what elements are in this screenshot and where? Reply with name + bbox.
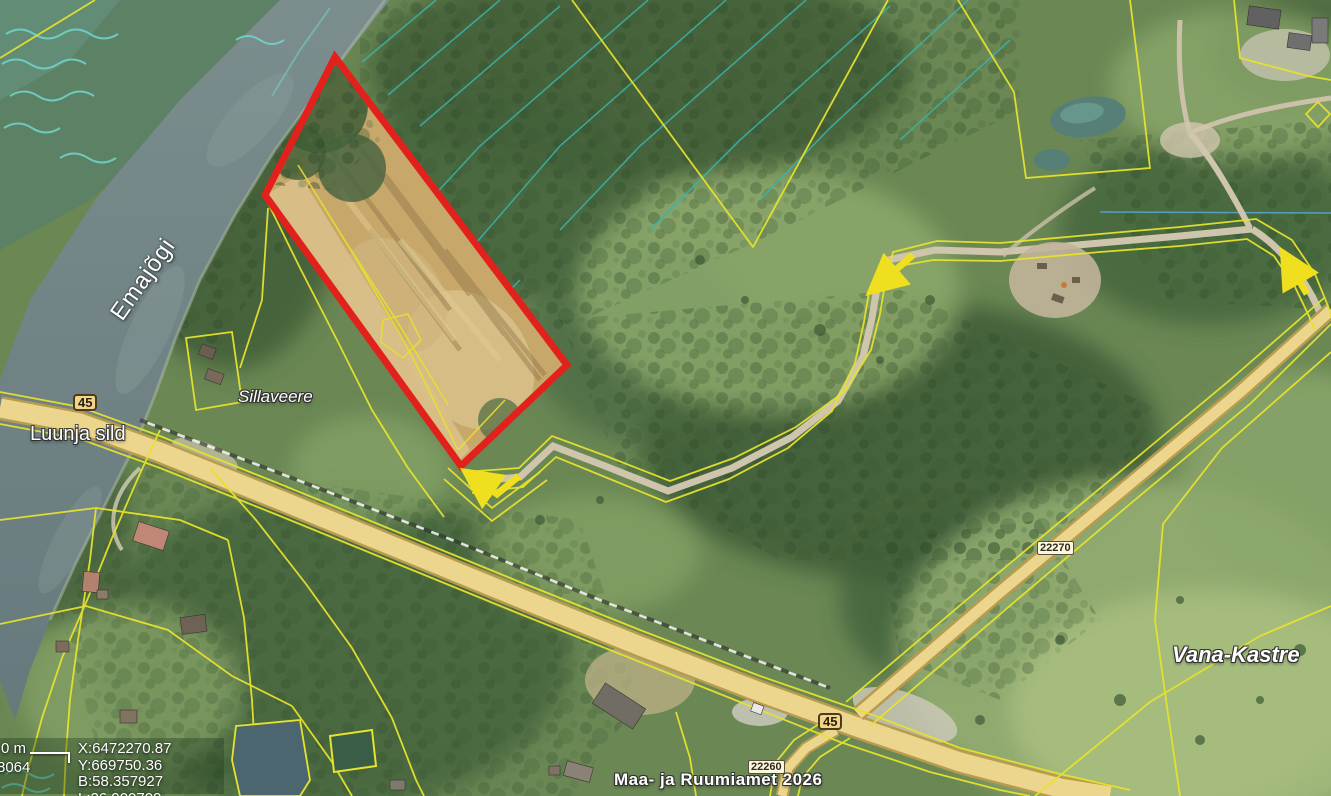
coords-bl: B:58.357927 L:26.900709 (78, 774, 224, 796)
coordinate-readout: X:6472270.87 Y:669750.36 B:58.357927 L:2… (78, 741, 224, 796)
blue-utility-line (1100, 212, 1331, 213)
info-panel: 0 m 8064 X:6472270.87 Y:669750.36 B:58.3… (0, 738, 224, 794)
scale-value: 8064 (0, 759, 30, 776)
aerial-map-art (0, 0, 1331, 796)
coords-xy: X:6472270.87 Y:669750.36 (78, 741, 224, 774)
map-canvas[interactable]: Emajõgi Luunja sild Sillaveere Vana-Kast… (0, 0, 1331, 796)
scale-bar (30, 752, 70, 763)
scale-bar-label: 0 m (1, 740, 26, 757)
